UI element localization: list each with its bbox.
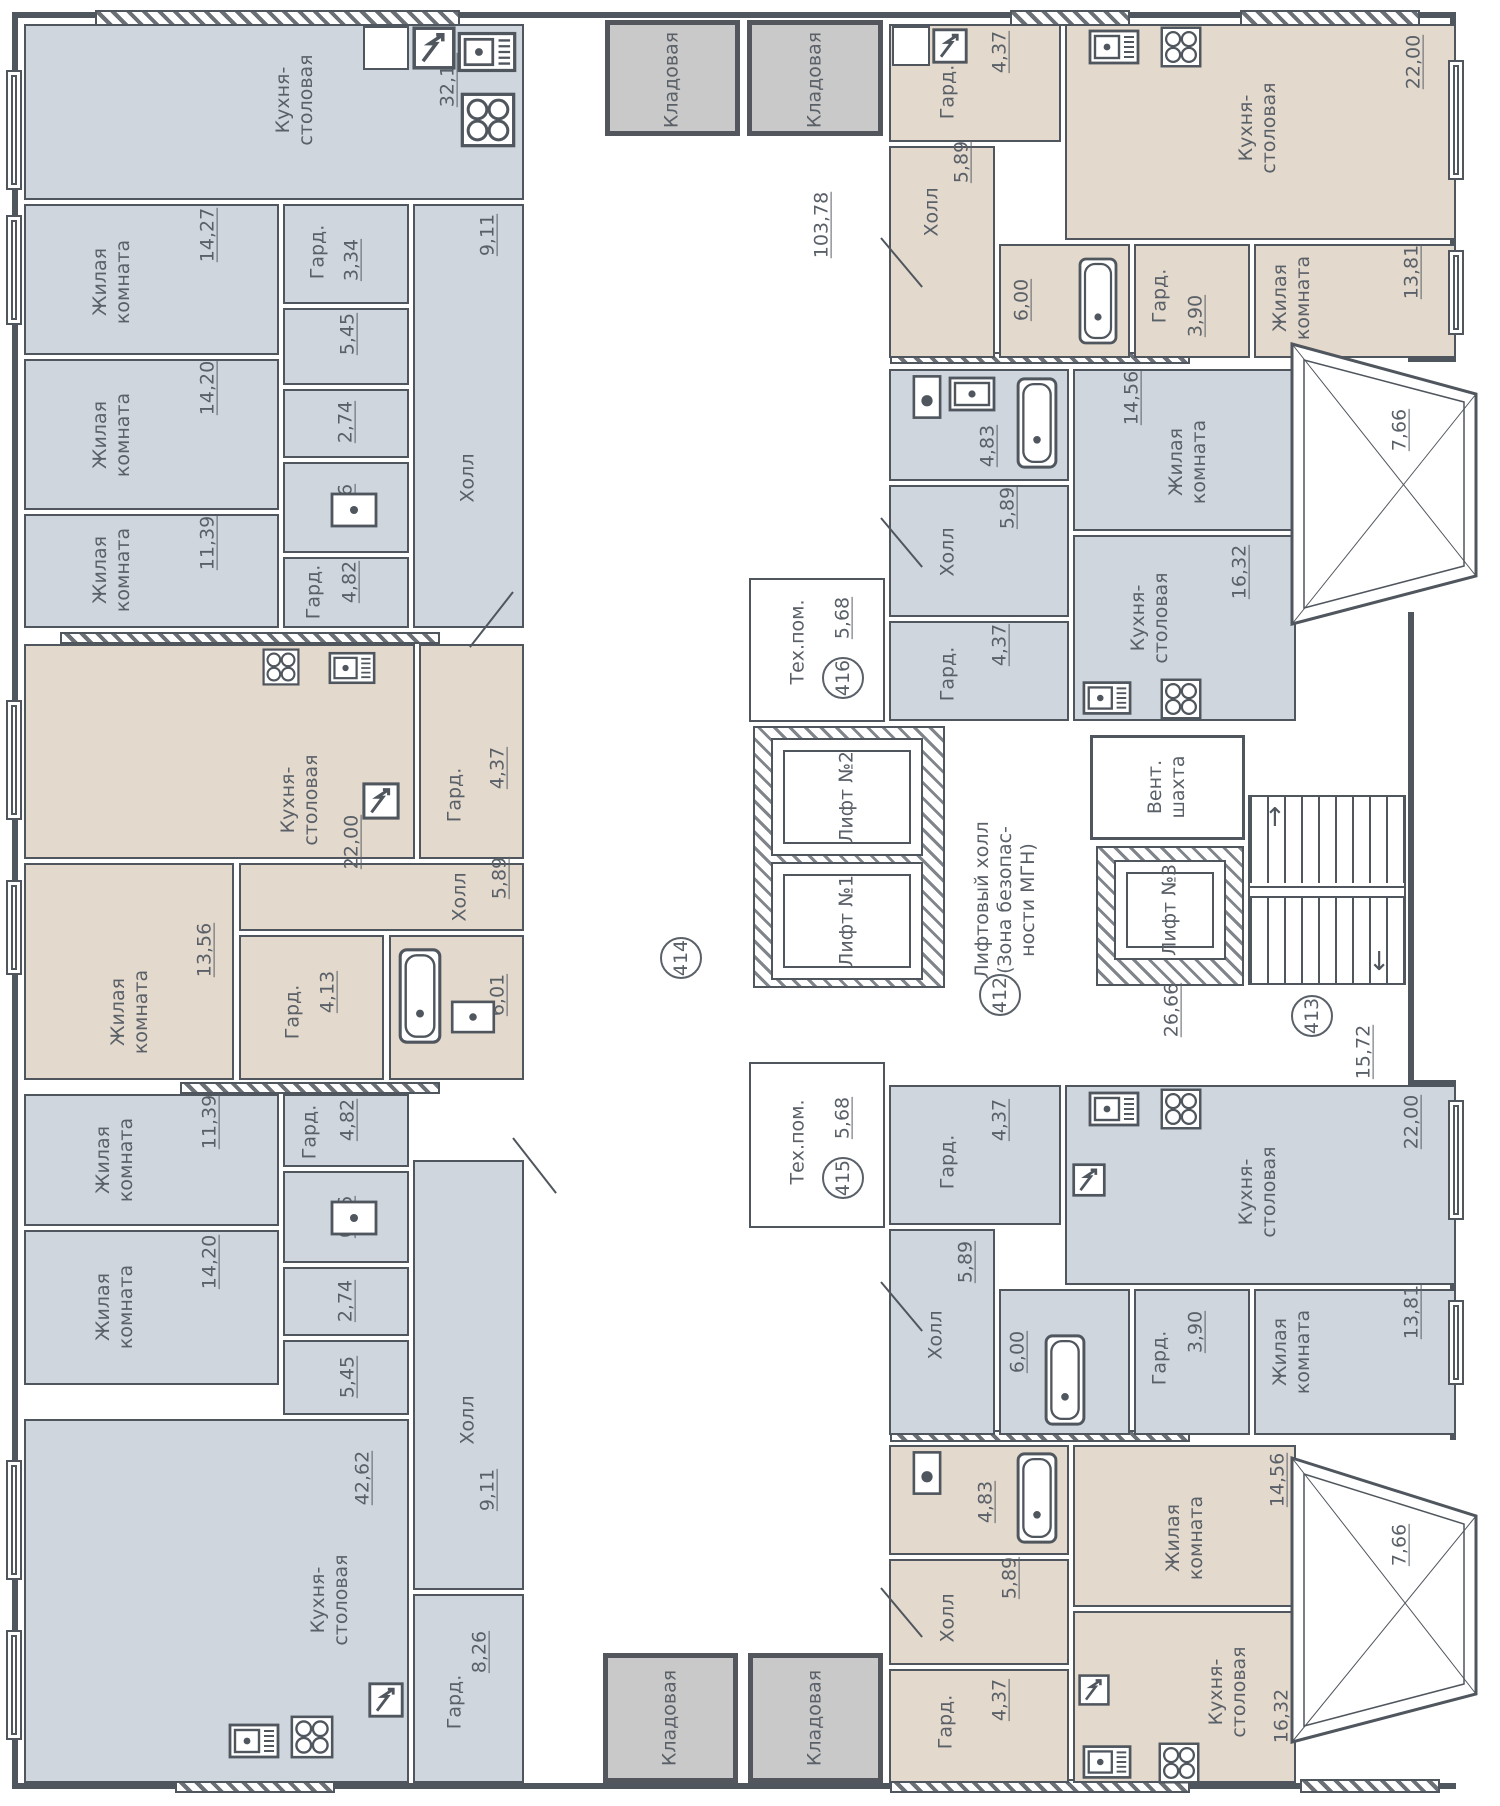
- bathtub-icon: [1044, 1330, 1086, 1430]
- floor-plan: Кухня- столовая 32,14 Жилая комната 14,2…: [0, 0, 1500, 1806]
- room-area-label: 4,13: [317, 971, 340, 1013]
- stove-icon: [460, 92, 516, 148]
- room-name-label: Гард.: [299, 1105, 322, 1159]
- room-ml-gard2: [239, 935, 384, 1080]
- stair-up-arrow: ↑: [1264, 805, 1286, 831]
- room-mr-hall: [889, 485, 1069, 617]
- window: [6, 70, 22, 190]
- room-tech-416: [749, 578, 885, 722]
- room-name-label: Кухня- столовая: [1127, 572, 1173, 663]
- stair-hall-area-label: 26,66: [1161, 983, 1184, 1037]
- room-name-label: Холл: [449, 873, 472, 922]
- room-name-label: Гард.: [282, 985, 305, 1039]
- room-name-label: Холл: [937, 1594, 960, 1643]
- stove-icon: [290, 1715, 334, 1759]
- room-area-label: 3,90: [1185, 1311, 1208, 1353]
- window: [6, 1630, 22, 1740]
- room-name-label: Тех.пом.: [787, 1100, 810, 1185]
- room-ml-hall: [239, 863, 524, 931]
- room-name-label: Гард.: [935, 1695, 958, 1749]
- wall: [1408, 612, 1414, 1090]
- washing-machine-icon: [912, 374, 942, 420]
- room-name-label: Жилая комната: [89, 240, 135, 324]
- balcony-area-label: 7,66: [1389, 409, 1412, 451]
- room-name-label: Холл: [457, 1396, 480, 1445]
- unit-number-badge: 413: [1291, 995, 1333, 1037]
- room-area-label: 14,27: [197, 208, 220, 262]
- room-area-label: 22,00: [1401, 1095, 1424, 1149]
- room-area-label: 4,37: [989, 1099, 1012, 1141]
- room-name-label: Жилая комната: [89, 528, 135, 612]
- room-area-label: 5,89: [997, 487, 1020, 529]
- room-area-label: 14,20: [199, 1235, 222, 1289]
- room-br-gard1: [889, 1085, 1061, 1225]
- room-name-label: Жилая комната: [1162, 1496, 1208, 1580]
- room-area-label: 22,00: [341, 815, 364, 869]
- room-area-label: 8,26: [469, 1631, 492, 1673]
- stair-down-arrow: ↓: [1368, 949, 1390, 975]
- window: [1448, 60, 1464, 180]
- window: [6, 215, 22, 325]
- window: [1448, 1100, 1464, 1220]
- unit-number-badge: 416: [822, 657, 864, 699]
- sink-icon: [1088, 28, 1140, 66]
- room-area-label: 9,11: [477, 214, 500, 256]
- room-name-label: Жилая комната: [1165, 420, 1211, 504]
- room-bl-living2: [24, 1230, 279, 1385]
- electric-panel-icon: [368, 1680, 404, 1720]
- room-area-label: 5,89: [489, 857, 512, 899]
- stove-icon: [262, 648, 300, 686]
- room-area-label: 13,81: [1401, 245, 1424, 299]
- sink-icon: [330, 1200, 378, 1236]
- room-bl-gard2: [413, 1594, 524, 1783]
- sink-icon: [1082, 680, 1132, 716]
- sink-icon: [330, 492, 378, 528]
- hatched-wall: [60, 632, 440, 644]
- room-tl-living1: [24, 204, 279, 355]
- balcony-bay: [1290, 338, 1485, 630]
- room-bb-gard: [889, 1669, 1069, 1783]
- room-name-label: Гард.: [1149, 1331, 1172, 1385]
- room-area-label: 4,82: [337, 1099, 360, 1141]
- bathtub-icon: [1078, 252, 1118, 350]
- room-area-label: 14,20: [197, 361, 220, 415]
- room-area-label: 6,00: [1011, 279, 1034, 321]
- room-mr-gard: [889, 621, 1069, 721]
- electric-panel-icon: [411, 26, 457, 70]
- room-tl-living2: [24, 359, 279, 510]
- room-area-label: 5,68: [832, 1097, 855, 1139]
- room-name-label: Гард.: [937, 647, 960, 701]
- bathtub-icon: [398, 942, 442, 1050]
- room-area-label: 22,00: [1403, 35, 1426, 89]
- room-name-label: Жилая комната: [1269, 1310, 1315, 1394]
- hatched-wall: [1300, 1779, 1440, 1793]
- room-name-label: Гард.: [1149, 269, 1172, 323]
- room-name-label: Кухня- столовая: [1235, 82, 1281, 173]
- room-name-label: Гард.: [307, 225, 330, 279]
- room-area-label: 16,32: [1229, 545, 1252, 599]
- room-area-label: 14,56: [1267, 1453, 1290, 1507]
- room-name-label: Жилая комната: [92, 1265, 138, 1349]
- window: [1448, 250, 1464, 335]
- room-name-label: Кухня- столовая: [307, 1554, 353, 1645]
- room-name-label: Кладовая: [661, 32, 684, 128]
- room-name-label: Тех.пом.: [787, 600, 810, 685]
- room-area-label: 42,62: [352, 1451, 375, 1505]
- room-name-label: Гард.: [444, 768, 467, 822]
- room-area-label: 5,45: [337, 313, 360, 355]
- room-name-label: Жилая комната: [92, 1118, 138, 1202]
- electric-panel-icon: [1078, 1670, 1110, 1710]
- room-area-label: 5,89: [951, 141, 974, 183]
- balcony-bay: [1290, 1450, 1485, 1750]
- window: [6, 880, 22, 975]
- bathtub-icon: [1016, 1448, 1058, 1548]
- room-area-label: 5,89: [955, 1241, 978, 1283]
- staircase: ↑ ↓: [1248, 795, 1406, 985]
- room-area-label: 2,74: [335, 1280, 358, 1322]
- bathtub-icon: [1016, 372, 1058, 474]
- room-bb-hall: [889, 1559, 1069, 1665]
- room-bl-hall: [413, 1160, 524, 1590]
- stove-icon: [1160, 678, 1202, 720]
- electric-panel-icon: [362, 780, 400, 822]
- room-area-label: 4,37: [487, 747, 510, 789]
- room-area-label: 2,74: [335, 401, 358, 443]
- room-area-label: 4,83: [975, 1481, 998, 1523]
- room-name-label: Жилая комната: [107, 970, 153, 1054]
- room-name-label: Гард.: [303, 565, 326, 619]
- room-name-label: Кухня- столовая: [277, 754, 323, 845]
- room-name-label: Холл: [925, 1311, 948, 1360]
- sink-icon: [328, 650, 376, 686]
- room-area-label: 5,45: [337, 1356, 360, 1398]
- room-name-label: Гард.: [937, 65, 960, 119]
- room-area-label: 3,34: [341, 239, 364, 281]
- room-area-label: 13,81: [1401, 1285, 1424, 1339]
- hatched-wall: [180, 1082, 440, 1094]
- stove-icon: [1160, 1088, 1202, 1130]
- sink-icon: [228, 1722, 280, 1760]
- room-name-label: Кухня- столовая: [1205, 1646, 1251, 1737]
- hall-area-label: 15,72: [1353, 1025, 1376, 1079]
- room-name-label: Кладовая: [804, 1670, 827, 1766]
- room-name-label: Кладовая: [659, 1670, 682, 1766]
- room-area-label: 9,11: [477, 1469, 500, 1511]
- cabinet-icon: [892, 26, 930, 66]
- room-tl-hall: [413, 204, 524, 628]
- room-name-label: Кладовая: [804, 32, 827, 128]
- room-area-label: 11,39: [197, 516, 220, 570]
- room-area-label: 4,82: [339, 561, 362, 603]
- room-bl-living1: [24, 1094, 279, 1226]
- room-tr-hall: [889, 146, 995, 358]
- cabinet-icon: [363, 26, 409, 70]
- electric-panel-icon: [932, 26, 968, 66]
- room-name-label: Кухня- столовая: [1235, 1146, 1281, 1237]
- elevator-label: Лифт №1: [836, 875, 859, 967]
- stove-icon: [1158, 1742, 1200, 1784]
- window: [6, 1460, 22, 1580]
- unit-number-badge: 412: [979, 974, 1021, 1016]
- room-area-label: 6,00: [1007, 1331, 1030, 1373]
- room-name-label: Жилая комната: [89, 393, 135, 477]
- sink-icon: [1088, 1090, 1140, 1128]
- room-area-label: 4,37: [989, 31, 1012, 73]
- unit-number-badge: 415: [822, 1157, 864, 1199]
- room-area-label: 5,68: [832, 597, 855, 639]
- stove-icon: [1160, 26, 1202, 68]
- room-tech-415: [749, 1062, 885, 1228]
- room-name-label: Холл: [937, 528, 960, 577]
- room-name-label: Холл: [457, 454, 480, 503]
- room-name-label: Жилая комната: [1269, 256, 1315, 340]
- room-name-label: Кухня- столовая: [272, 54, 318, 145]
- room-area-label: 11,39: [199, 1095, 222, 1149]
- lift-hall-label: Лифтовый холл (Зона безопас- ности МГН): [971, 821, 1039, 978]
- room-area-label: 4,37: [989, 1679, 1012, 1721]
- room-name-label: Холл: [921, 188, 944, 237]
- sink-icon: [1082, 1744, 1132, 1780]
- room-area-label: 4,37: [989, 624, 1012, 666]
- room-name-label: Гард.: [937, 1135, 960, 1189]
- sink-icon: [457, 30, 517, 74]
- sink-icon: [948, 376, 996, 412]
- room-name-label: Гард.: [444, 1675, 467, 1729]
- washing-machine-icon: [912, 1450, 942, 1496]
- room-area-label: 13,56: [194, 923, 217, 977]
- window: [1448, 1300, 1464, 1385]
- window: [6, 700, 22, 820]
- balcony-area-label: 7,66: [1389, 1524, 1412, 1566]
- corridor-area-label: 103,78: [811, 192, 834, 258]
- room-area-label: 4,83: [977, 425, 1000, 467]
- room-area-label: 3,90: [1185, 295, 1208, 337]
- elevator-label: Лифт №2: [836, 751, 859, 843]
- room-tl-living3: [24, 514, 279, 628]
- unit-number-badge: 414: [660, 937, 702, 979]
- elevator-label: Лифт №3: [1159, 864, 1182, 956]
- vent-shaft-label: Вент. шахта: [1144, 756, 1190, 819]
- room-area-label: 5,89: [999, 1557, 1022, 1599]
- sink-icon: [450, 1000, 496, 1034]
- room-area-label: 14,56: [1121, 371, 1144, 425]
- electric-panel-icon: [1072, 1160, 1106, 1200]
